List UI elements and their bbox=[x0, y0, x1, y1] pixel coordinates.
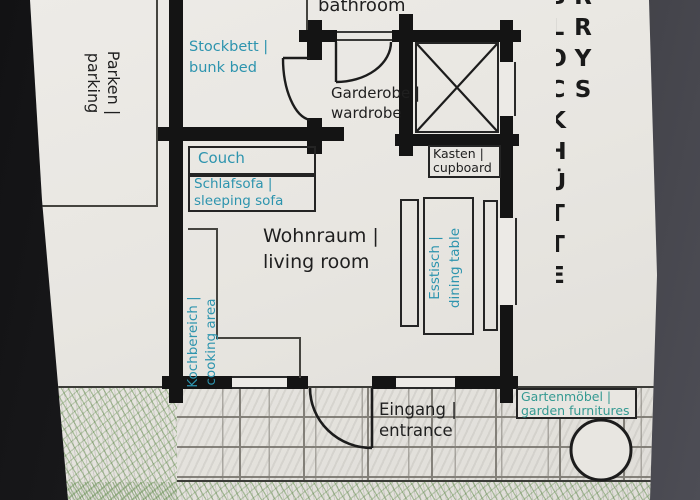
wall-top-left bbox=[299, 30, 337, 42]
kitchen-counter-right bbox=[299, 337, 301, 378]
bathroom-door-opening bbox=[337, 31, 392, 41]
cooking-area-label: Kochbereich | cooking area bbox=[184, 253, 220, 431]
window-bottom-right bbox=[396, 376, 455, 389]
bunk-bed-label-en: bunk bed bbox=[189, 58, 268, 79]
parking-label: Parken | parking bbox=[83, 0, 123, 168]
xbox-fixture bbox=[415, 42, 499, 133]
parking-boundary-horizontal bbox=[28, 205, 158, 207]
living-room-label-en: living room bbox=[263, 250, 379, 276]
parking-label-de: Parken | bbox=[103, 0, 123, 168]
sleeping-sofa-label-de: Schlafsofa | bbox=[194, 176, 283, 193]
bedroom-door-arc bbox=[283, 58, 310, 120]
garden-furniture-label-en: garden furnitures bbox=[521, 404, 630, 418]
wall-left bbox=[169, 0, 183, 403]
living-room-label-de: Wohnraum | bbox=[263, 224, 379, 250]
bathroom-door-arc bbox=[336, 42, 391, 82]
dining-table-label: Esstisch | dining table bbox=[425, 203, 469, 333]
bunk-bed-label-de: Stockbett | bbox=[189, 37, 268, 58]
margin-vertical-title: RRYS BLOCKHÜTTE bbox=[556, 0, 596, 398]
window-bottom-left bbox=[232, 376, 287, 389]
couch-label: Couch bbox=[198, 149, 245, 167]
dining-bench-right bbox=[483, 200, 498, 331]
wardrobe-label: Garderobe | wardrobe bbox=[331, 84, 420, 123]
kitchen-counter-bottom bbox=[216, 337, 301, 339]
sleeping-sofa-label: Schlafsofa | sleeping sofa bbox=[194, 176, 283, 210]
parking-label-en: parking bbox=[83, 0, 103, 168]
wall-bottom-c bbox=[372, 376, 396, 389]
window-right-middle bbox=[496, 218, 517, 305]
grass-area-bottom bbox=[60, 482, 655, 500]
wall-bottom-d bbox=[455, 376, 518, 389]
wall-right-middle bbox=[500, 116, 513, 218]
cupboard-label: Kasten | cupboard bbox=[433, 147, 492, 176]
cupboard-label-en: cupboard bbox=[433, 161, 492, 175]
wall-bottom-b bbox=[287, 376, 308, 389]
dining-table-label-en: dining table bbox=[445, 203, 465, 333]
kitchen-counter-top bbox=[188, 228, 218, 230]
cupboard-label-de: Kasten | bbox=[433, 147, 492, 161]
dining-table-label-de: Esstisch | bbox=[425, 203, 445, 333]
entrance-label-de: Eingang | bbox=[379, 400, 457, 421]
cooking-area-label-de: Kochbereich | bbox=[184, 253, 202, 431]
entrance-label-en: entrance bbox=[379, 421, 457, 442]
bunk-bed-label: Stockbett | bunk bed bbox=[189, 37, 268, 79]
wardrobe-label-de: Garderobe | bbox=[331, 84, 420, 104]
sleeping-sofa-label-en: sleeping sofa bbox=[194, 193, 283, 210]
floor-plan-paper: bathroom Stockbett | bunk bed Garderobe … bbox=[0, 0, 700, 500]
entrance-label: Eingang | entrance bbox=[379, 400, 457, 441]
wardrobe-label-en: wardrobe bbox=[331, 104, 420, 124]
bathroom-partition-line bbox=[306, 0, 308, 30]
window-right-upper bbox=[497, 62, 516, 116]
wall-right-upper bbox=[500, 20, 513, 62]
photo-background: bathroom Stockbett | bunk bed Garderobe … bbox=[0, 0, 700, 500]
dining-bench-left bbox=[400, 199, 419, 327]
cooking-area-label-en: cooking area bbox=[202, 253, 220, 431]
living-room-label: Wohnraum | living room bbox=[263, 224, 379, 275]
parking-boundary-vertical bbox=[156, 0, 158, 207]
bathroom-label: bathroom bbox=[318, 0, 406, 16]
